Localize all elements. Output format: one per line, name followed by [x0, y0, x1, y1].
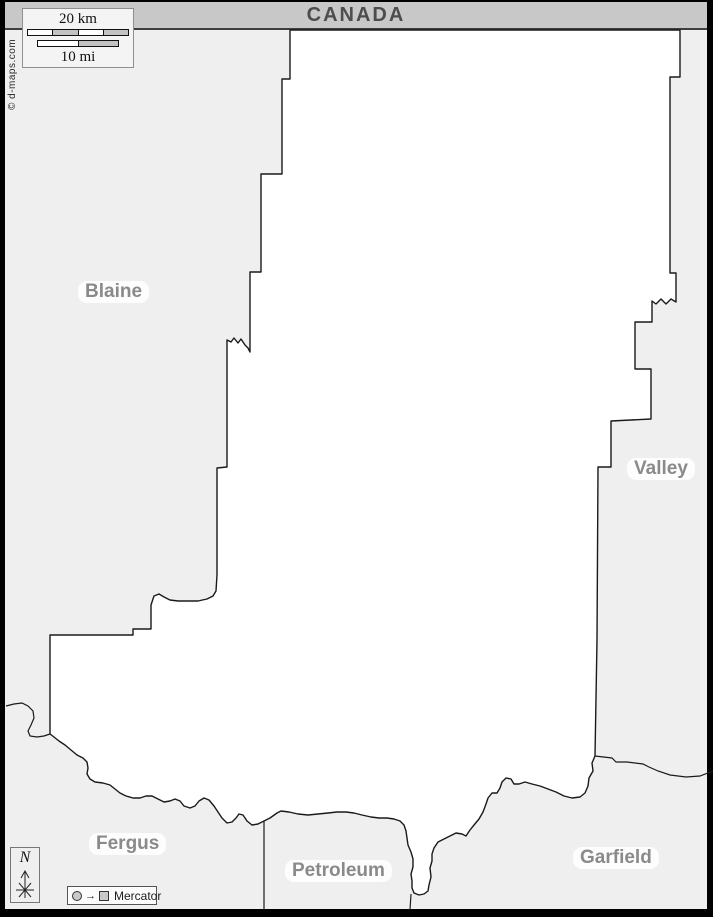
- north-arrow-icon: [10, 867, 40, 901]
- km-scale-bar: [27, 29, 129, 36]
- mi-scale-bar: [37, 40, 119, 47]
- label-blaine: Blaine: [78, 281, 149, 303]
- projection-label: Mercator: [114, 889, 161, 903]
- scale-mi-label: 10 mi: [61, 49, 96, 65]
- compass: N: [10, 847, 40, 903]
- compass-north-label: N: [20, 849, 31, 867]
- country-banner-title: CANADA: [307, 4, 406, 27]
- label-petroleum: Petroleum: [285, 860, 392, 882]
- map-canvas: CANADA: [5, 2, 707, 909]
- copyright-text: © d-maps.com: [7, 18, 18, 110]
- projection-legend: → Mercator: [67, 886, 157, 905]
- square-icon: [99, 891, 109, 901]
- label-fergus: Fergus: [89, 833, 166, 855]
- label-garfield: Garfield: [573, 847, 659, 869]
- scale-km-label: 20 km: [59, 11, 97, 27]
- circle-icon: [72, 891, 82, 901]
- scale-box: 20 km 10 mi: [22, 8, 134, 68]
- map-screenshot: { "banner": { "title": "CANADA" }, "scal…: [0, 0, 713, 917]
- arrow-icon: →: [85, 891, 96, 901]
- label-valley: Valley: [627, 458, 695, 480]
